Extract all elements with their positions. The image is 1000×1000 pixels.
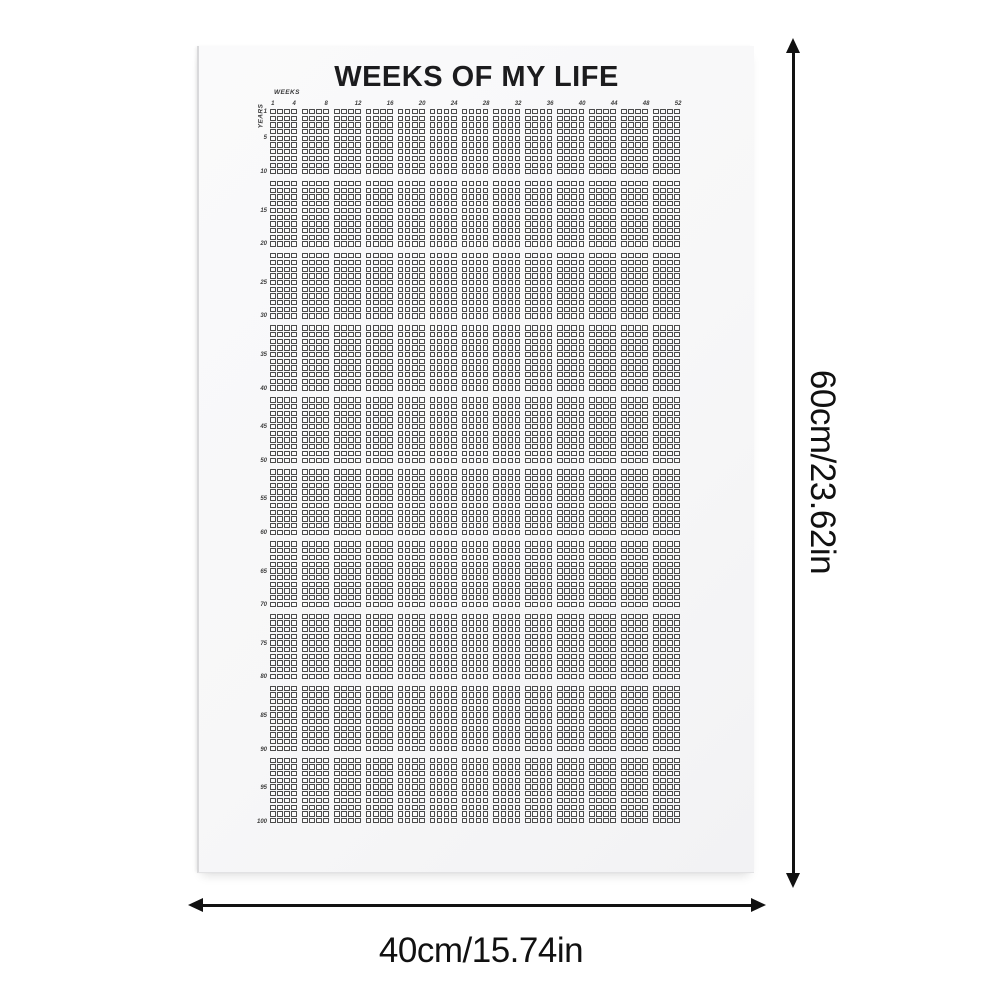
week-cell [412, 260, 418, 265]
week-cell [444, 530, 450, 535]
week-cell [451, 352, 457, 357]
week-cell [540, 732, 546, 737]
week-cell [323, 325, 329, 330]
week-cell [483, 712, 489, 717]
week-cell [462, 149, 468, 154]
week-cell [515, 667, 521, 672]
week-cell [557, 280, 563, 285]
week-cell [348, 116, 354, 121]
week-cell [277, 411, 283, 416]
week-cell [603, 300, 609, 305]
week-cell [366, 647, 372, 652]
week-cell [302, 208, 308, 213]
week-cell [515, 483, 521, 488]
week-cell [476, 372, 482, 377]
week-cell [547, 489, 553, 494]
week-cell [387, 194, 393, 199]
week-cell [316, 699, 322, 704]
week-cell [579, 595, 585, 600]
week-cell [291, 260, 297, 265]
week-cell [557, 523, 563, 528]
week-cell [660, 235, 666, 240]
week-cell [621, 541, 627, 546]
week-cell [341, 483, 347, 488]
week-cell [444, 496, 450, 501]
week-cell [628, 379, 634, 384]
week-cell [412, 293, 418, 298]
week-cell [348, 489, 354, 494]
week-cell [525, 260, 531, 265]
week-cell [284, 634, 290, 639]
week-cell [284, 541, 290, 546]
week-cell [469, 437, 475, 442]
week-cell [547, 654, 553, 659]
week-cell [277, 660, 283, 665]
week-cell [398, 541, 404, 546]
week-cell [284, 476, 290, 481]
week-cell [334, 469, 340, 474]
week-cell [398, 437, 404, 442]
week-cell [348, 339, 354, 344]
week-cell [341, 503, 347, 508]
week-cell [302, 620, 308, 625]
week-cell [515, 660, 521, 665]
week-cell [366, 582, 372, 587]
week-cell [398, 706, 404, 711]
week-cell [610, 523, 616, 528]
week-cell [323, 541, 329, 546]
week-cell [291, 674, 297, 679]
week-cell [564, 595, 570, 600]
week-cell [547, 169, 553, 174]
week-cell [674, 523, 680, 528]
week-cell [334, 496, 340, 501]
week-cell [405, 588, 411, 593]
week-cell [302, 719, 308, 724]
week-cell [603, 582, 609, 587]
week-cell [603, 444, 609, 449]
week-cell [642, 352, 648, 357]
week-cell [603, 503, 609, 508]
week-cell [501, 699, 507, 704]
week-cell [603, 339, 609, 344]
week-cell [348, 647, 354, 652]
week-cell [667, 339, 673, 344]
week-cell [437, 469, 443, 474]
week-cell [635, 221, 641, 226]
week-cell [603, 397, 609, 402]
week-cell [667, 293, 673, 298]
week-block [525, 325, 552, 390]
week-cell [628, 654, 634, 659]
week-cell [341, 620, 347, 625]
week-cell [628, 260, 634, 265]
week-cell [355, 300, 361, 305]
week-cell [525, 489, 531, 494]
week-cell [355, 483, 361, 488]
week-cell [571, 510, 577, 515]
week-cell [323, 307, 329, 312]
week-cell [653, 562, 659, 567]
week-cell [316, 273, 322, 278]
week-cell [508, 489, 514, 494]
week-cell [462, 273, 468, 278]
week-cell [398, 627, 404, 632]
week-cell [291, 516, 297, 521]
week-cell [398, 116, 404, 121]
week-cell [405, 758, 411, 763]
week-cell [348, 699, 354, 704]
week-cell [270, 811, 276, 816]
week-cell [348, 332, 354, 337]
week-cell [532, 208, 538, 213]
week-cell [642, 116, 648, 121]
week-cell [380, 122, 386, 127]
week-cell [610, 431, 616, 436]
week-cell [667, 181, 673, 186]
week-cell [341, 307, 347, 312]
week-cell [508, 458, 514, 463]
week-cell [493, 555, 499, 560]
week-cell [628, 424, 634, 429]
week-cell [444, 674, 450, 679]
week-cell [334, 215, 340, 220]
week-cell [579, 194, 585, 199]
week-cell [660, 122, 666, 127]
week-cell [515, 339, 521, 344]
week-cell [309, 647, 315, 652]
week-cell [412, 595, 418, 600]
week-cell [508, 300, 514, 305]
week-cell [660, 241, 666, 246]
week-cell [430, 489, 436, 494]
week-cell [323, 732, 329, 737]
week-cell [373, 451, 379, 456]
week-cell [270, 798, 276, 803]
week-block [366, 469, 393, 534]
week-cell [571, 719, 577, 724]
week-cell [667, 404, 673, 409]
week-cell [334, 458, 340, 463]
week-cell [316, 260, 322, 265]
week-cell [674, 417, 680, 422]
week-cell [355, 798, 361, 803]
week-cell [270, 451, 276, 456]
week-cell [348, 109, 354, 114]
week-cell [451, 595, 457, 600]
week-cell [540, 215, 546, 220]
week-cell [462, 431, 468, 436]
week-cell [398, 582, 404, 587]
week-cell [284, 686, 290, 691]
week-cell [635, 372, 641, 377]
week-cell [405, 136, 411, 141]
week-cell [469, 385, 475, 390]
week-cell [451, 575, 457, 580]
week-cell [635, 379, 641, 384]
week-cell [451, 437, 457, 442]
week-cell [589, 287, 595, 292]
week-cell [309, 634, 315, 639]
week-cell [564, 489, 570, 494]
week-cell [284, 359, 290, 364]
week-cell [444, 194, 450, 199]
week-cell [419, 620, 425, 625]
week-cell [525, 444, 531, 449]
week-cell [476, 667, 482, 672]
week-cell [483, 194, 489, 199]
week-cell [476, 339, 482, 344]
week-cell [674, 142, 680, 147]
week-cell [398, 746, 404, 751]
week-cell [405, 686, 411, 691]
week-cell [302, 510, 308, 515]
week-cell [469, 287, 475, 292]
week-cell [430, 503, 436, 508]
week-cell [515, 169, 521, 174]
week-cell [667, 555, 673, 560]
week-cell [564, 568, 570, 573]
week-cell [270, 116, 276, 121]
week-cell [547, 510, 553, 515]
week-cell [302, 712, 308, 717]
week-cell [667, 602, 673, 607]
week-cell [571, 595, 577, 600]
week-cell [525, 699, 531, 704]
week-cell [348, 739, 354, 744]
week-cell [355, 201, 361, 206]
week-cell [667, 726, 673, 731]
week-cell [589, 345, 595, 350]
week-cell [674, 260, 680, 265]
week-cell [653, 582, 659, 587]
week-cell [515, 706, 521, 711]
week-cell [515, 241, 521, 246]
week-cell [596, 686, 602, 691]
week-cell [366, 235, 372, 240]
week-cell [341, 634, 347, 639]
week-cell [323, 818, 329, 823]
week-cell [430, 458, 436, 463]
week-cell [355, 568, 361, 573]
week-cell [373, 654, 379, 659]
week-cell [355, 595, 361, 600]
week-cell [540, 699, 546, 704]
week-cell [309, 771, 315, 776]
week-cell [674, 267, 680, 272]
week-cell [430, 483, 436, 488]
week-cell [515, 548, 521, 553]
week-cell [316, 548, 322, 553]
week-cell [525, 339, 531, 344]
week-cell [476, 169, 482, 174]
week-cell [373, 784, 379, 789]
week-cell [398, 726, 404, 731]
week-cell [380, 476, 386, 481]
week-cell [373, 548, 379, 553]
week-cell [323, 602, 329, 607]
week-cell [277, 686, 283, 691]
week-cell [373, 712, 379, 717]
week-cell [380, 228, 386, 233]
week-cell [270, 692, 276, 697]
week-cell [596, 253, 602, 258]
week-cell [525, 458, 531, 463]
week-cell [380, 726, 386, 731]
week-cell [398, 712, 404, 717]
week-cell [270, 496, 276, 501]
week-cell [589, 726, 595, 731]
week-cell [667, 116, 673, 121]
week-cell [525, 109, 531, 114]
week-cell [380, 469, 386, 474]
week-cell [660, 228, 666, 233]
week-cell [667, 215, 673, 220]
week-cell [667, 627, 673, 632]
week-cell [430, 332, 436, 337]
week-cell [277, 287, 283, 292]
week-cell [462, 548, 468, 553]
week-cell [564, 365, 570, 370]
week-cell [437, 365, 443, 370]
week-cell [532, 614, 538, 619]
week-cell [284, 516, 290, 521]
week-cell [547, 359, 553, 364]
week-block [398, 686, 425, 751]
week-cell [557, 451, 563, 456]
week-cell [660, 503, 666, 508]
week-cell [462, 235, 468, 240]
week-cell [284, 431, 290, 436]
week-cell [610, 647, 616, 652]
week-cell [525, 208, 531, 213]
week-cell [366, 541, 372, 546]
week-cell [642, 667, 648, 672]
week-cell [532, 555, 538, 560]
week-cell [380, 169, 386, 174]
week-cell [334, 372, 340, 377]
week-cell [483, 208, 489, 213]
week-cell [596, 588, 602, 593]
week-cell [621, 732, 627, 737]
week-cell [355, 778, 361, 783]
week-cell [444, 280, 450, 285]
year-band [270, 758, 680, 823]
week-cell [373, 582, 379, 587]
week-cell [603, 595, 609, 600]
week-cell [323, 451, 329, 456]
week-cell [532, 437, 538, 442]
week-cell [621, 273, 627, 278]
week-cell [621, 627, 627, 632]
week-cell [660, 221, 666, 226]
week-cell [501, 431, 507, 436]
week-cell [451, 444, 457, 449]
week-cell [653, 647, 659, 652]
week-cell [483, 647, 489, 652]
week-cell [405, 726, 411, 731]
week-cell [373, 352, 379, 357]
week-cell [387, 397, 393, 402]
week-cell [579, 523, 585, 528]
week-cell [348, 818, 354, 823]
week-cell [674, 582, 680, 587]
week-block [334, 758, 361, 823]
week-cell [323, 404, 329, 409]
week-block [557, 614, 584, 679]
week-cell [316, 109, 322, 114]
week-cell [525, 541, 531, 546]
week-cell [579, 169, 585, 174]
week-cell [589, 530, 595, 535]
week-cell [444, 208, 450, 213]
week-cell [419, 686, 425, 691]
week-cell [589, 595, 595, 600]
week-cell [476, 699, 482, 704]
week-cell [412, 692, 418, 697]
week-cell [380, 791, 386, 796]
week-cell [284, 699, 290, 704]
week-cell [387, 169, 393, 174]
week-cell [366, 706, 372, 711]
week-cell [564, 273, 570, 278]
week-cell [302, 365, 308, 370]
week-cell [515, 300, 521, 305]
week-cell [483, 458, 489, 463]
week-block [302, 541, 329, 606]
week-cell [469, 116, 475, 121]
week-cell [628, 660, 634, 665]
week-cell [547, 640, 553, 645]
week-cell [525, 483, 531, 488]
week-cell [323, 706, 329, 711]
week-cell [603, 267, 609, 272]
week-cell [501, 109, 507, 114]
week-cell [366, 811, 372, 816]
week-cell [284, 411, 290, 416]
week-cell [508, 163, 514, 168]
week-cell [451, 273, 457, 278]
week-cell [323, 345, 329, 350]
week-cell [642, 201, 648, 206]
week-cell [437, 595, 443, 600]
week-cell [334, 712, 340, 717]
week-cell [309, 811, 315, 816]
week-cell [419, 647, 425, 652]
week-cell [291, 726, 297, 731]
week-cell [430, 699, 436, 704]
week-cell [277, 811, 283, 816]
week-cell [579, 496, 585, 501]
week-cell [412, 404, 418, 409]
week-cell [501, 510, 507, 515]
week-cell [277, 169, 283, 174]
week-cell [603, 602, 609, 607]
week-cell [437, 614, 443, 619]
week-cell [270, 516, 276, 521]
week-cell [579, 215, 585, 220]
week-cell [398, 417, 404, 422]
week-cell [430, 300, 436, 305]
week-cell [642, 686, 648, 691]
week-cell [476, 582, 482, 587]
week-cell [547, 411, 553, 416]
week-cell [419, 122, 425, 127]
week-cell [444, 241, 450, 246]
week-cell [628, 510, 634, 515]
week-cell [660, 595, 666, 600]
week-cell [501, 444, 507, 449]
